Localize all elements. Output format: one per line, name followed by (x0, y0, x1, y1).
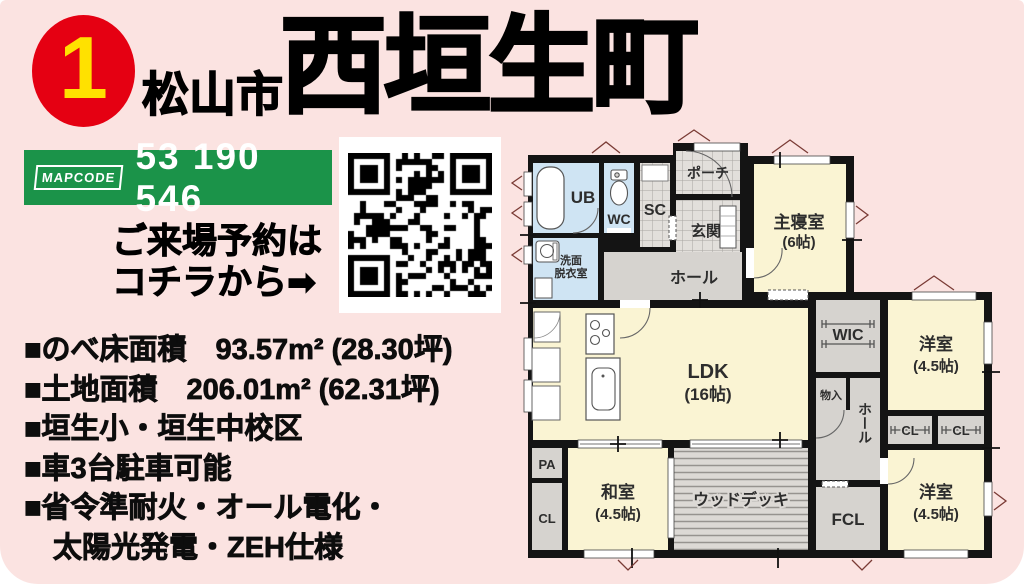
room-hall2-b (816, 410, 850, 480)
label-hall2: ホール (857, 402, 873, 444)
detail-school-zone: ■垣生小・垣生中校区 (24, 410, 452, 450)
label-storage: 物入 (820, 388, 842, 402)
detail-floor-area: ■のべ床面積 93.57m² (28.30坪) (24, 331, 452, 371)
label-hall: ホール (670, 269, 718, 287)
entrance-cabinet-icon (720, 206, 736, 248)
label-pa: PA (538, 457, 556, 472)
bathtub-icon (537, 167, 564, 229)
label-western1-name: 洋室 (919, 334, 953, 354)
property-details: ■のべ床面積 93.57m² (28.30坪) ■土地面積 206.01m² (… (24, 331, 452, 568)
label-closet-3: CL (538, 511, 555, 526)
town-title: 西垣生町 (280, 8, 696, 126)
reservation-line-1: ご来場予約は (112, 221, 322, 262)
label-western1-size: (4.5帖) (913, 357, 959, 375)
vanity-icon (535, 278, 552, 298)
label-toilet: WC (607, 211, 630, 227)
label-bathroom: UB (571, 188, 596, 207)
toilet-icon (611, 170, 628, 205)
room-ldk (533, 308, 808, 440)
label-shoe-closet: SC (644, 202, 667, 219)
label-ldk-size: (16帖) (684, 384, 731, 404)
label-entrance: 玄関 (691, 222, 721, 240)
listing-number-badge: 1 (32, 15, 135, 127)
label-master-name: 主寝室 (774, 212, 825, 232)
shoe-shelf (642, 165, 668, 181)
reservation-note: ご来場予約は コチラから➡ (112, 221, 322, 303)
city-label: 松山市 (142, 56, 283, 125)
mapcode-banner: MAPCODE 53 190 546 (24, 150, 332, 205)
qr-code-image (348, 153, 492, 297)
label-western2-name: 洋室 (919, 482, 953, 502)
flyer-page: 1 松山市 西垣生町 MAPCODE 53 190 546 ご来場予約は コチラ… (0, 0, 1024, 584)
detail-land-area: ■土地面積 206.01m² (62.31坪) (24, 371, 452, 411)
label-washroom-2: 脱衣室 (555, 266, 588, 280)
mapcode-value: 53 190 546 (135, 136, 332, 220)
washer-icon (536, 241, 559, 262)
label-porch: ポーチ (687, 165, 729, 181)
label-ldk-name: LDK (687, 361, 729, 383)
floor-plan: UB WC SC ポーチ 玄関 洗面 脱衣室 ホール 主寝室 (6帖) LDK … (508, 126, 1022, 584)
detail-parking: ■車3台駐車可能 (24, 450, 452, 490)
label-wic: WIC (832, 327, 864, 344)
label-master-size: (6帖) (782, 233, 815, 251)
listing-number: 1 (59, 24, 108, 112)
label-closet-1: CL (901, 423, 918, 438)
label-washroom-1: 洗面 (560, 253, 582, 267)
qr-code (339, 137, 501, 313)
label-fcl: FCL (831, 510, 864, 529)
reservation-line-2: コチラから➡ (112, 262, 322, 303)
label-deck: ウッドデッキ (693, 490, 789, 509)
mapcode-logo: MAPCODE (34, 165, 124, 190)
label-western2-size: (4.5帖) (913, 505, 959, 523)
label-japanese-size: (4.5帖) (595, 505, 641, 523)
detail-spec-line-2: 太陽光発電・ZEH仕様 (24, 529, 452, 569)
room-western-1 (888, 300, 984, 410)
label-japanese-name: 和室 (601, 482, 635, 502)
label-closet-2: CL (952, 423, 969, 438)
detail-spec-line-1: ■省令準耐火・オール電化・ (24, 489, 452, 529)
